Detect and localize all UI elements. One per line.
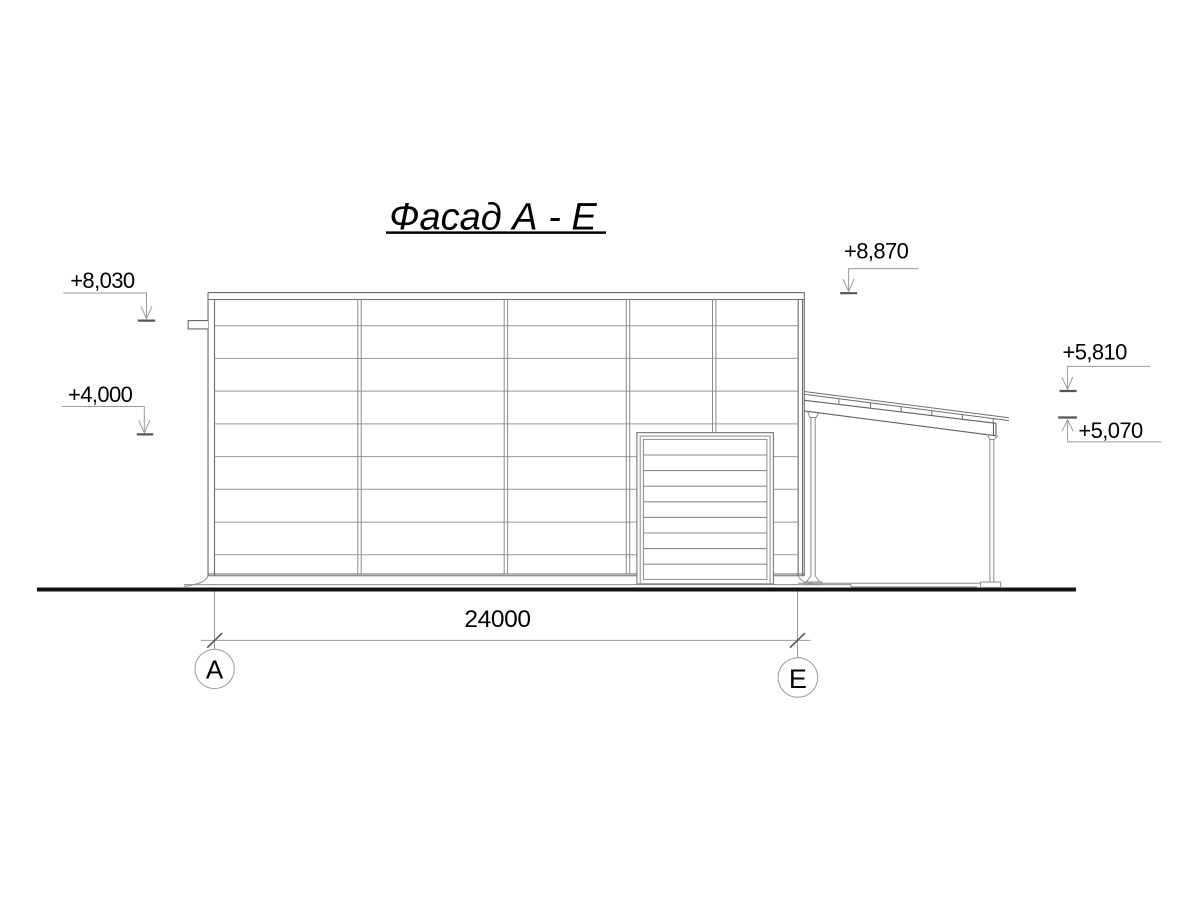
svg-text:+8,870: +8,870 bbox=[844, 239, 909, 264]
svg-text:А: А bbox=[206, 655, 224, 685]
svg-text:+5,070: +5,070 bbox=[1078, 418, 1143, 443]
svg-text:Е: Е bbox=[789, 664, 807, 694]
svg-text:+4,000: +4,000 bbox=[68, 382, 133, 407]
svg-text:+8,030: +8,030 bbox=[70, 268, 135, 293]
svg-text:+5,810: +5,810 bbox=[1063, 339, 1128, 364]
svg-text:24000: 24000 bbox=[464, 606, 530, 633]
